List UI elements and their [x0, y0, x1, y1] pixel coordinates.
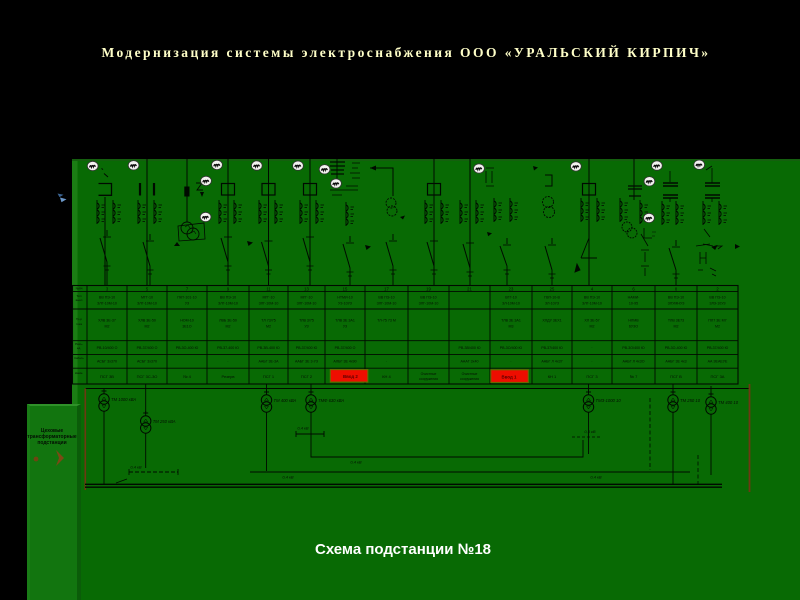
svg-text:ЗЛГ-10М-10: ЗЛГ-10М-10 [137, 302, 157, 306]
svg-text:М2: М2 [105, 325, 110, 329]
svg-text:сооружения: сооружения [419, 377, 438, 381]
svg-text:10-95: 10-95 [629, 302, 638, 306]
svg-text:РВ-3В-400 Ю: РВ-3В-400 Ю [257, 346, 280, 350]
svg-text:ПСГ В: ПСГ В [670, 374, 682, 379]
svg-text:ВВ ПЭ-10: ВВ ПЭ-10 [584, 296, 600, 300]
svg-text:ЗЛГ-10М-10: ЗЛГ-10М-10 [97, 302, 117, 306]
svg-text:ВВ ПЭ-10: ВВ ПЭ-10 [668, 296, 684, 300]
svg-text:АААГ 3х40: АААГ 3х40 [461, 359, 479, 363]
svg-text:РВ-3О-400 Ю: РВ-3О-400 Ю [176, 346, 199, 350]
svg-text:ХЛВ 3Е-50: ХЛВ 3Е-50 [138, 319, 156, 323]
svg-text:ЗЛГ-10М-10: ЗЛГ-10М-10 [259, 302, 279, 306]
svg-text:23: 23 [509, 286, 514, 291]
svg-text:ЗЛГ-10М-10: ЗЛГ-10М-10 [377, 302, 397, 306]
svg-text:УЗ: УЗ [343, 325, 347, 329]
svg-text:РВ-37-400 Ю: РВ-37-400 Ю [217, 346, 239, 350]
svg-text:ТМ 400 кВА: ТМ 400 кВА [274, 398, 297, 403]
svg-text:тока: тока [76, 322, 82, 326]
svg-text:25: 25 [550, 286, 555, 291]
svg-text:Резерв: Резерв [222, 374, 235, 379]
svg-text:ААБГ 3Е-3А: ААБГ 3Е-3А [258, 359, 279, 363]
svg-text:19: 19 [426, 286, 431, 291]
svg-text:21: 21 [467, 286, 472, 291]
svg-text:Наим.: Наим. [75, 371, 84, 375]
svg-text:ТМ 1000 кВА: ТМ 1000 кВА [111, 397, 136, 402]
svg-text:6УЗО: 6УЗО [629, 325, 638, 329]
svg-text:ТМЗ-1000 10: ТМЗ-1000 10 [596, 398, 622, 403]
svg-text:ВВ ПЭ-10: ВВ ПЭ-10 [420, 296, 436, 300]
svg-text:0,4 кВ: 0,4 кВ [584, 429, 596, 434]
svg-text:№ 4: № 4 [183, 374, 191, 379]
svg-text:ПСГ 3В: ПСГ 3В [100, 374, 114, 379]
svg-text:15: 15 [343, 286, 348, 291]
svg-text:ТМФ 630 кВА: ТМФ 630 кВА [318, 398, 344, 403]
svg-text:Кабель: Кабель [74, 356, 84, 360]
svg-text:ЗЛ-10УЗ: ЗЛ-10УЗ [545, 302, 559, 306]
svg-text:ВГГ-10: ВГГ-10 [505, 296, 516, 300]
svg-text:№ 7: № 7 [630, 374, 638, 379]
svg-text:выкл: выкл [76, 298, 83, 302]
svg-text:КН 4: КН 4 [382, 374, 391, 379]
svg-text:НТМИ-10: НТМИ-10 [337, 296, 353, 300]
svg-text:·: · [591, 359, 592, 363]
svg-text:НАМИ-: НАМИ- [628, 296, 641, 300]
svg-text:17: 17 [384, 286, 389, 291]
svg-text:Очистные: Очистные [462, 372, 478, 376]
svg-text:РВ-37/400 Ю: РВ-37/400 Ю [296, 346, 318, 350]
svg-text:ЗЛГ-10М-10: ЗЛГ-10М-10 [582, 302, 602, 306]
svg-text:Тр-р: Тр-р [76, 317, 82, 321]
svg-text:ПЛ7 3Е М7: ПЛ7 3Е М7 [708, 319, 726, 323]
svg-text:ТМ 250 кВА: ТМ 250 кВА [153, 419, 176, 424]
svg-text:АА ЗЕАЕУЕ: АА ЗЕАЕУЕ [708, 359, 728, 363]
svg-text:НЛМВ: НЛМВ [628, 319, 639, 323]
svg-text:ТЛВ 3Е 3А1: ТЛВ 3Е 3А1 [501, 319, 521, 323]
svg-text:ПСГ 2: ПСГ 2 [301, 374, 313, 379]
svg-text:ТЛ 73/75: ТЛ 73/75 [261, 319, 275, 323]
svg-text:М2: М2 [674, 325, 679, 329]
svg-text:М2: М2 [590, 325, 595, 329]
svg-text:УЗ: УЗ [304, 325, 308, 329]
svg-text:М2: М2 [226, 325, 231, 329]
svg-text:РВ-3В/400 Ю: РВ-3В/400 Ю [458, 346, 480, 350]
svg-text:ЗЛЗ-10УЗ: ЗЛЗ-10УЗ [709, 302, 725, 306]
svg-text:ТЛВ 3/75: ТЛВ 3/75 [299, 319, 314, 323]
svg-text:ЗЛУМНУЗ: ЗЛУМНУЗ [668, 302, 685, 306]
svg-text:ХЛ 3Е-57: ХЛ 3Е-57 [584, 319, 599, 323]
svg-text:АСБГ 3х370: АСБГ 3х370 [137, 359, 157, 363]
svg-text:·: · [510, 359, 511, 363]
svg-text:ТМ 400 10: ТМ 400 10 [718, 400, 739, 405]
svg-text:Ввод 1: Ввод 1 [502, 374, 517, 379]
svg-text:ААБГ 3Е 4х3: ААБГ 3Е 4х3 [665, 359, 686, 363]
svg-text:ЗЛГ-10М-10: ЗЛГ-10М-10 [419, 302, 439, 306]
svg-text:·: · [386, 359, 387, 363]
svg-text:ХЛВ 3Е-37: ХЛВ 3Е-37 [98, 319, 116, 323]
svg-text:РВ-37/400 О: РВ-37/400 О [137, 346, 158, 350]
svg-text:·: · [227, 359, 228, 363]
svg-text:ТЛВ 3Е73: ТЛВ 3Е73 [668, 319, 684, 323]
svg-text:УЗ-10УЗ: УЗ-10УЗ [338, 302, 352, 306]
svg-text:0,4 кВ: 0,4 кВ [297, 426, 309, 431]
svg-text:НОМ-10: НОМ-10 [180, 319, 194, 323]
svg-text:ААБГ 3Е 3-УЗ: ААБГ 3Е 3-УЗ [295, 359, 318, 363]
svg-text:РВ-3О/400 Ю: РВ-3О/400 Ю [500, 346, 523, 350]
svg-text:ЗЛГ-10М-10: ЗЛГ-10М-10 [297, 302, 317, 306]
svg-text:ЗЛ-10М-10: ЗЛ-10М-10 [502, 302, 520, 306]
svg-text:ТЛ-75 73 М: ТЛ-75 73 М [377, 319, 396, 323]
svg-text:АСБГ 3х370: АСБГ 3х370 [97, 359, 117, 363]
svg-text:М2: М2 [715, 325, 720, 329]
svg-text:ПКТ-101-10: ПКТ-101-10 [177, 296, 196, 300]
svg-text:РВ-3О/400 Ю: РВ-3О/400 Ю [622, 346, 645, 350]
svg-text:ед.: ед. [77, 346, 81, 350]
svg-text:РВ-3О-400 Ю: РВ-3О-400 Ю [665, 346, 688, 350]
svg-text:ЗЛГ-10М-10: ЗЛГ-10М-10 [218, 302, 238, 306]
svg-text:ВВ ПЭ-10: ВВ ПЭ-10 [220, 296, 236, 300]
svg-text:Очистные: Очистные [421, 372, 437, 376]
svg-text:ПСГ 3С-3О: ПСГ 3С-3О [137, 374, 158, 379]
svg-text:РВ-10/400 О: РВ-10/400 О [97, 346, 118, 350]
svg-text:МГГ-10: МГГ-10 [141, 296, 153, 300]
svg-text:ВВ ПЭ-10: ВВ ПЭ-10 [378, 296, 394, 300]
svg-text:№яч: №яч [76, 287, 83, 291]
svg-text:РВ-37/400 О: РВ-37/400 О [335, 346, 356, 350]
svg-text:ЛВБ 3Е-50: ЛВБ 3Е-50 [219, 319, 237, 323]
svg-text:11: 11 [266, 286, 271, 291]
svg-text:ВВ ПЭ-10: ВВ ПЭ-10 [709, 296, 725, 300]
svg-text:ПСГ 3: ПСГ 3 [586, 374, 598, 379]
svg-text:ТМ 250 10: ТМ 250 10 [680, 398, 701, 403]
svg-text:ААБГ Л 4х3О: ААБГ Л 4х3О [622, 359, 644, 363]
svg-text:ПСГ 1: ПСГ 1 [263, 374, 275, 379]
svg-text:ААБГ Л 4х37: ААБГ Л 4х37 [541, 359, 562, 363]
svg-text:0,4 кВ: 0,4 кВ [282, 475, 294, 480]
svg-text:М2: М2 [266, 325, 271, 329]
svg-text:3Е1О: 3Е1О [182, 325, 191, 329]
svg-text:13: 13 [304, 286, 309, 291]
svg-text:ПСГ 3А: ПСГ 3А [711, 374, 725, 379]
svg-text:0,4 кВ: 0,4 кВ [590, 475, 602, 480]
svg-text:РВ-37/400 Ю: РВ-37/400 Ю [707, 346, 729, 350]
svg-text:ХЛДУ 3ЕХ1: ХЛДУ 3ЕХ1 [542, 319, 561, 323]
svg-text:ГВП-10-В: ГВП-10-В [544, 296, 560, 300]
svg-text:ВВ ПЭ-10: ВВ ПЭ-10 [99, 296, 115, 300]
svg-text:АЛБГ 3Е 4х90: АЛБГ 3Е 4х90 [333, 359, 356, 363]
svg-text:МГГ-10: МГГ-10 [262, 296, 274, 300]
svg-text:МГГ-10: МГГ-10 [300, 296, 312, 300]
svg-text:КН 1: КН 1 [548, 374, 557, 379]
svg-text:УЗ: УЗ [185, 302, 189, 306]
svg-text:·: · [591, 346, 592, 350]
svg-text:сооружения: сооружения [460, 377, 479, 381]
svg-text:0,4 кВ: 0,4 кВ [350, 460, 362, 465]
svg-text:М2: М2 [145, 325, 150, 329]
svg-text:М3: М3 [509, 325, 514, 329]
svg-text:0,4 кВ: 0,4 кВ [130, 465, 142, 470]
svg-text:РВ-37/400 Ю: РВ-37/400 Ю [541, 346, 563, 350]
svg-text:ТЛВ 3Е 3А1: ТЛВ 3Е 3А1 [335, 319, 355, 323]
svg-text:Ввод 2: Ввод 2 [343, 374, 358, 379]
